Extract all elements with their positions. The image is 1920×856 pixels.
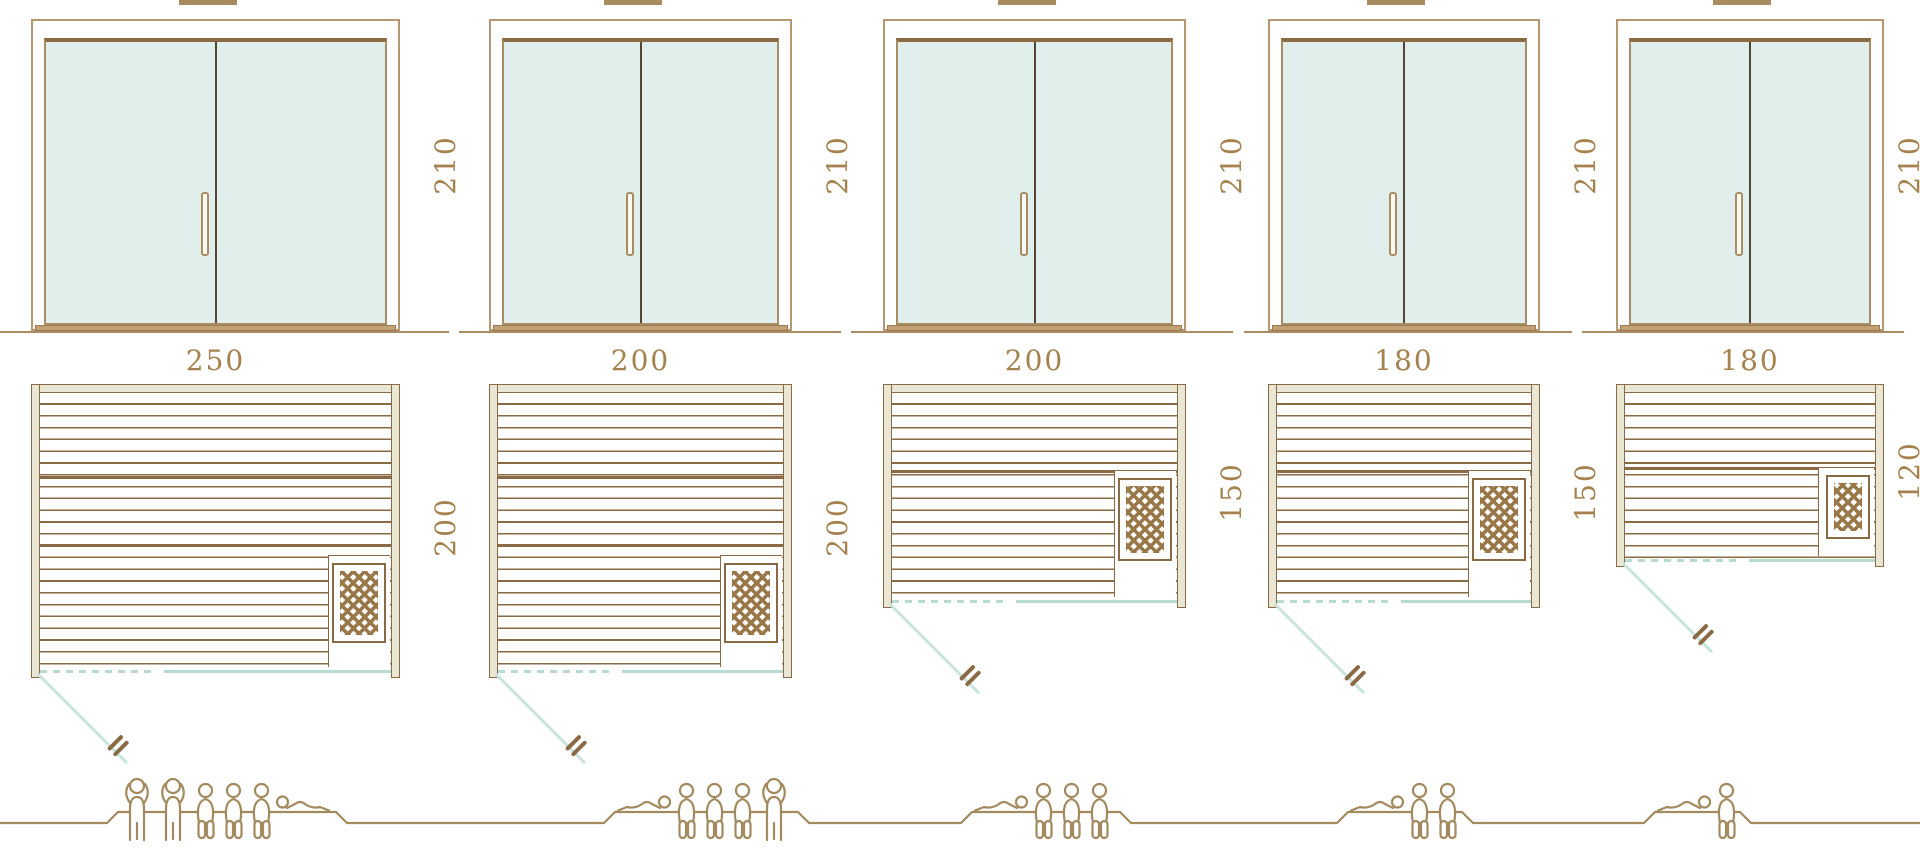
glass-door-panels xyxy=(502,38,779,325)
plan-door-handle-icon xyxy=(1692,623,1715,646)
glass-door-panels xyxy=(44,38,387,325)
plan-back-wall xyxy=(1268,384,1540,393)
heater-mesh xyxy=(732,571,770,635)
cabin-column-1: 210 250 200 xyxy=(31,0,400,856)
plan-right-wall xyxy=(1531,384,1540,608)
door-divider-line xyxy=(1749,42,1751,323)
door-handle xyxy=(1735,192,1743,256)
glass-door-panels xyxy=(896,38,1173,325)
plan-door-handle-icon xyxy=(959,664,982,687)
glass-door-panels xyxy=(1629,38,1871,325)
door-sill xyxy=(887,325,1182,331)
sitting-person-icon xyxy=(679,784,695,838)
height-dimension-label: 210 xyxy=(1218,133,1246,197)
glass-front-line xyxy=(164,670,391,673)
sauna-heater xyxy=(1118,478,1172,561)
heater-mesh xyxy=(340,571,378,635)
glass-front-line xyxy=(1016,600,1177,603)
heater-mesh xyxy=(1834,483,1862,531)
roof-vent-cap xyxy=(179,0,237,5)
glass-front-line xyxy=(1749,559,1875,562)
roof-vent-cap xyxy=(998,0,1056,5)
lying-person-icon xyxy=(618,797,670,811)
door-elevation xyxy=(883,19,1186,331)
lying-person-icon xyxy=(975,797,1027,811)
sauna-heater xyxy=(724,563,778,643)
door-opening-dashed-line xyxy=(892,600,1008,603)
sitting-person-icon xyxy=(1440,784,1456,838)
plan-back-wall xyxy=(489,384,792,393)
door-opening-dashed-line xyxy=(40,670,156,673)
depth-dimension-label: 150 xyxy=(1572,460,1600,524)
height-dimension-label: 210 xyxy=(1896,133,1920,197)
sitting-person-icon xyxy=(226,784,242,838)
door-handle xyxy=(1389,192,1397,256)
lying-person-icon xyxy=(277,797,329,811)
sitting-person-icon xyxy=(707,784,723,838)
depth-dimension-label: 150 xyxy=(1218,460,1246,524)
cabin-column-4: 210 180 150 xyxy=(1268,0,1540,856)
door-handle xyxy=(626,192,634,256)
door-elevation xyxy=(489,19,792,331)
plan-left-wall xyxy=(489,384,498,678)
width-dimension-label: 200 xyxy=(883,347,1186,375)
sauna-heater xyxy=(332,563,386,643)
door-opening-dashed-line xyxy=(1277,600,1393,603)
plan-door-handle-icon xyxy=(107,734,130,757)
people-figures xyxy=(126,779,1734,840)
roof-vent-cap xyxy=(1713,0,1771,5)
sauna-heater xyxy=(1472,478,1526,561)
lying-person-icon xyxy=(1351,797,1403,811)
sitting-person-icon xyxy=(254,784,270,838)
door-elevation xyxy=(1268,19,1540,331)
ground-platform-line xyxy=(0,812,1920,823)
sitting-person-icon xyxy=(735,784,751,838)
sitting-person-icon xyxy=(1064,784,1080,838)
roof-vent-cap xyxy=(1367,0,1425,5)
door-sill xyxy=(1620,325,1880,331)
cabin-column-3: 210 200 150 xyxy=(883,0,1186,856)
door-elevation xyxy=(31,19,400,331)
width-dimension-label: 250 xyxy=(31,347,400,375)
heater-mesh xyxy=(1480,486,1518,553)
sauna-heater xyxy=(1826,475,1870,539)
door-sill xyxy=(493,325,788,331)
depth-dimension-label: 120 xyxy=(1896,439,1920,503)
plan-right-wall xyxy=(391,384,400,678)
door-divider-line xyxy=(1034,42,1036,323)
bench-edge-line xyxy=(498,544,783,547)
depth-dimension-label: 200 xyxy=(432,495,460,559)
standing-person-icon xyxy=(763,779,785,840)
height-dimension-label: 210 xyxy=(432,133,460,197)
glass-front-line xyxy=(622,670,783,673)
door-handle xyxy=(201,192,209,256)
bench-edge-line xyxy=(40,476,391,479)
heater-mesh xyxy=(1126,486,1164,553)
plan-back-wall xyxy=(31,384,400,393)
door-sill xyxy=(35,325,396,331)
glass-door-panels xyxy=(1281,38,1527,325)
lying-person-icon xyxy=(1658,797,1710,811)
sauna-size-diagram: 210 250 200 210 200 200 xyxy=(0,0,1920,856)
sitting-person-icon xyxy=(1092,784,1108,838)
glass-front-line xyxy=(1401,600,1531,603)
sitting-person-icon xyxy=(1719,784,1735,838)
standing-person-icon xyxy=(162,779,184,840)
sitting-person-icon xyxy=(198,784,214,838)
standing-person-icon xyxy=(126,779,148,840)
plan-left-wall xyxy=(1616,384,1625,567)
roof-vent-cap xyxy=(604,0,662,5)
bench-edge-line xyxy=(40,544,391,547)
height-dimension-label: 210 xyxy=(824,133,852,197)
sitting-person-icon xyxy=(1036,784,1052,838)
capacity-people-strip xyxy=(0,776,1920,856)
plan-back-wall xyxy=(883,384,1186,393)
width-dimension-label: 180 xyxy=(1616,347,1884,375)
door-divider-line xyxy=(1403,42,1405,323)
door-opening-dashed-line xyxy=(498,670,614,673)
width-dimension-label: 180 xyxy=(1268,347,1540,375)
door-sill xyxy=(1272,325,1536,331)
door-elevation xyxy=(1616,19,1884,331)
cabin-column-2: 210 200 200 xyxy=(489,0,792,856)
sitting-person-icon xyxy=(1412,784,1428,838)
plan-back-wall xyxy=(1616,384,1884,393)
plan-door-handle-icon xyxy=(565,734,588,757)
plan-left-wall xyxy=(31,384,40,678)
plan-right-wall xyxy=(1177,384,1186,608)
plan-left-wall xyxy=(1268,384,1277,608)
width-dimension-label: 200 xyxy=(489,347,792,375)
door-divider-line xyxy=(640,42,642,323)
plan-right-wall xyxy=(1875,384,1884,567)
cabin-column-5: 210 180 120 xyxy=(1616,0,1884,856)
door-opening-dashed-line xyxy=(1625,559,1741,562)
door-handle xyxy=(1020,192,1028,256)
plan-door-handle-icon xyxy=(1344,664,1367,687)
door-divider-line xyxy=(215,42,217,323)
height-dimension-label: 210 xyxy=(1572,133,1600,197)
bench-edge-line xyxy=(498,476,783,479)
depth-dimension-label: 200 xyxy=(824,495,852,559)
plan-right-wall xyxy=(783,384,792,678)
plan-left-wall xyxy=(883,384,892,608)
